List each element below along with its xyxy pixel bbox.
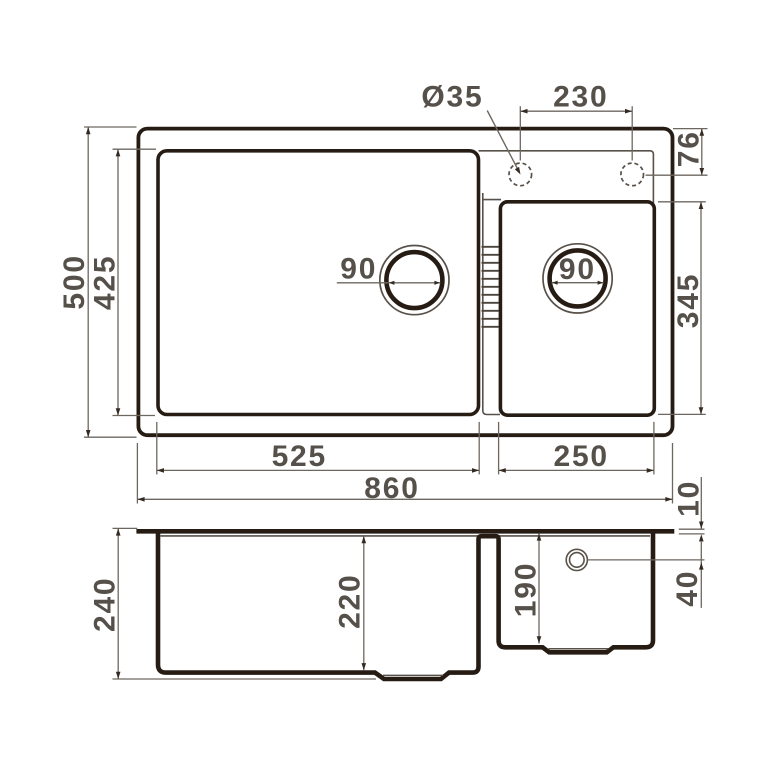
svg-text:860: 860: [364, 472, 419, 505]
svg-text:76: 76: [673, 130, 706, 167]
svg-text:345: 345: [672, 273, 705, 328]
svg-text:90: 90: [340, 253, 377, 286]
svg-text:500: 500: [58, 254, 91, 309]
svg-text:230: 230: [553, 81, 608, 114]
svg-text:190: 190: [510, 562, 543, 617]
svg-text:Ø35: Ø35: [421, 81, 483, 114]
svg-text:240: 240: [89, 577, 122, 632]
svg-text:525: 525: [272, 440, 327, 473]
svg-text:10: 10: [673, 480, 706, 517]
svg-text:250: 250: [553, 440, 608, 473]
svg-text:90: 90: [559, 253, 596, 286]
svg-text:425: 425: [88, 255, 121, 310]
svg-text:220: 220: [334, 573, 367, 628]
svg-text:40: 40: [671, 570, 704, 607]
